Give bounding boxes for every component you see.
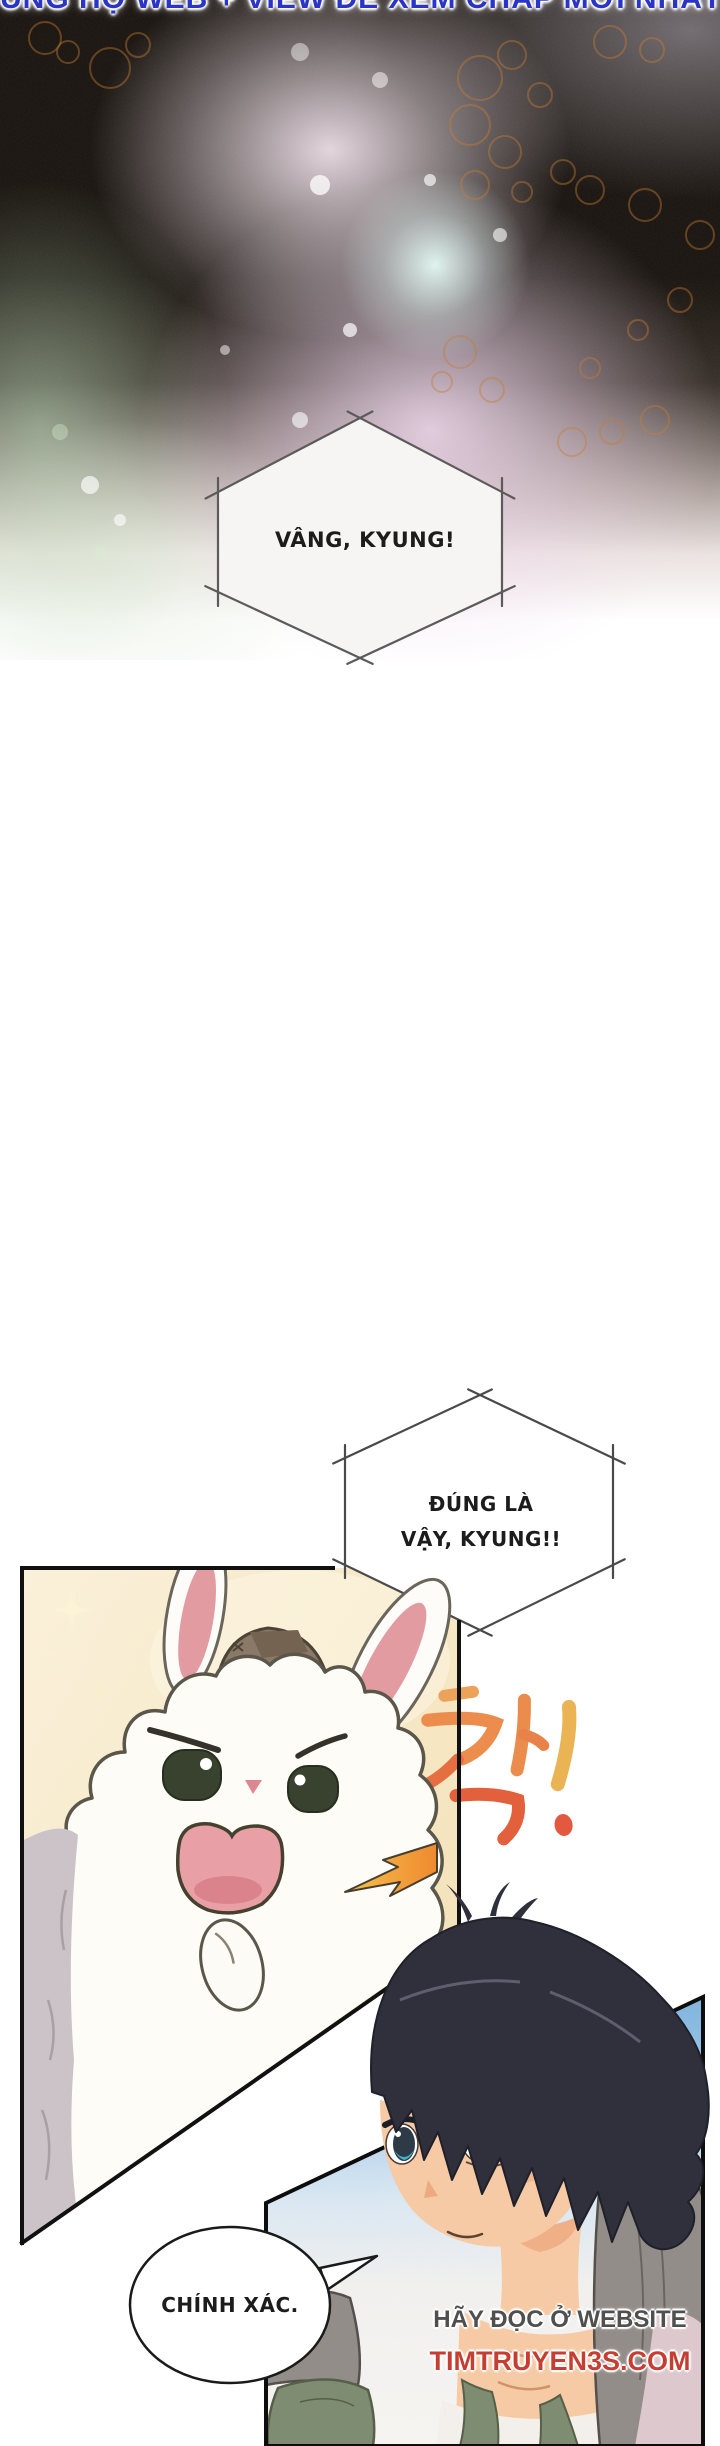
bubble3-tail <box>320 2256 377 2290</box>
watermark-line2: TIMTRUYEN3S.COM <box>420 2346 700 2377</box>
left-eye <box>163 1750 221 1800</box>
bubble3-text: CHÍNH XÁC. <box>130 2293 330 2317</box>
bubble2-line1: ĐÚNG LÀ <box>345 1487 617 1522</box>
comic-page: ỦNG HỘ WEB + VIEW ĐỂ XEM CHAP MỚI NHẤT V… <box>0 0 720 2446</box>
watermark-line1: HÃY ĐỌC Ở WEBSITE <box>420 2306 700 2334</box>
site-banner-text: ỦNG HỘ WEB + VIEW ĐỂ XEM CHAP MỚI NHẤT <box>0 0 720 16</box>
right-eye <box>288 1766 338 1812</box>
bubble1-text: VÂNG, KYUNG! <box>230 528 500 552</box>
